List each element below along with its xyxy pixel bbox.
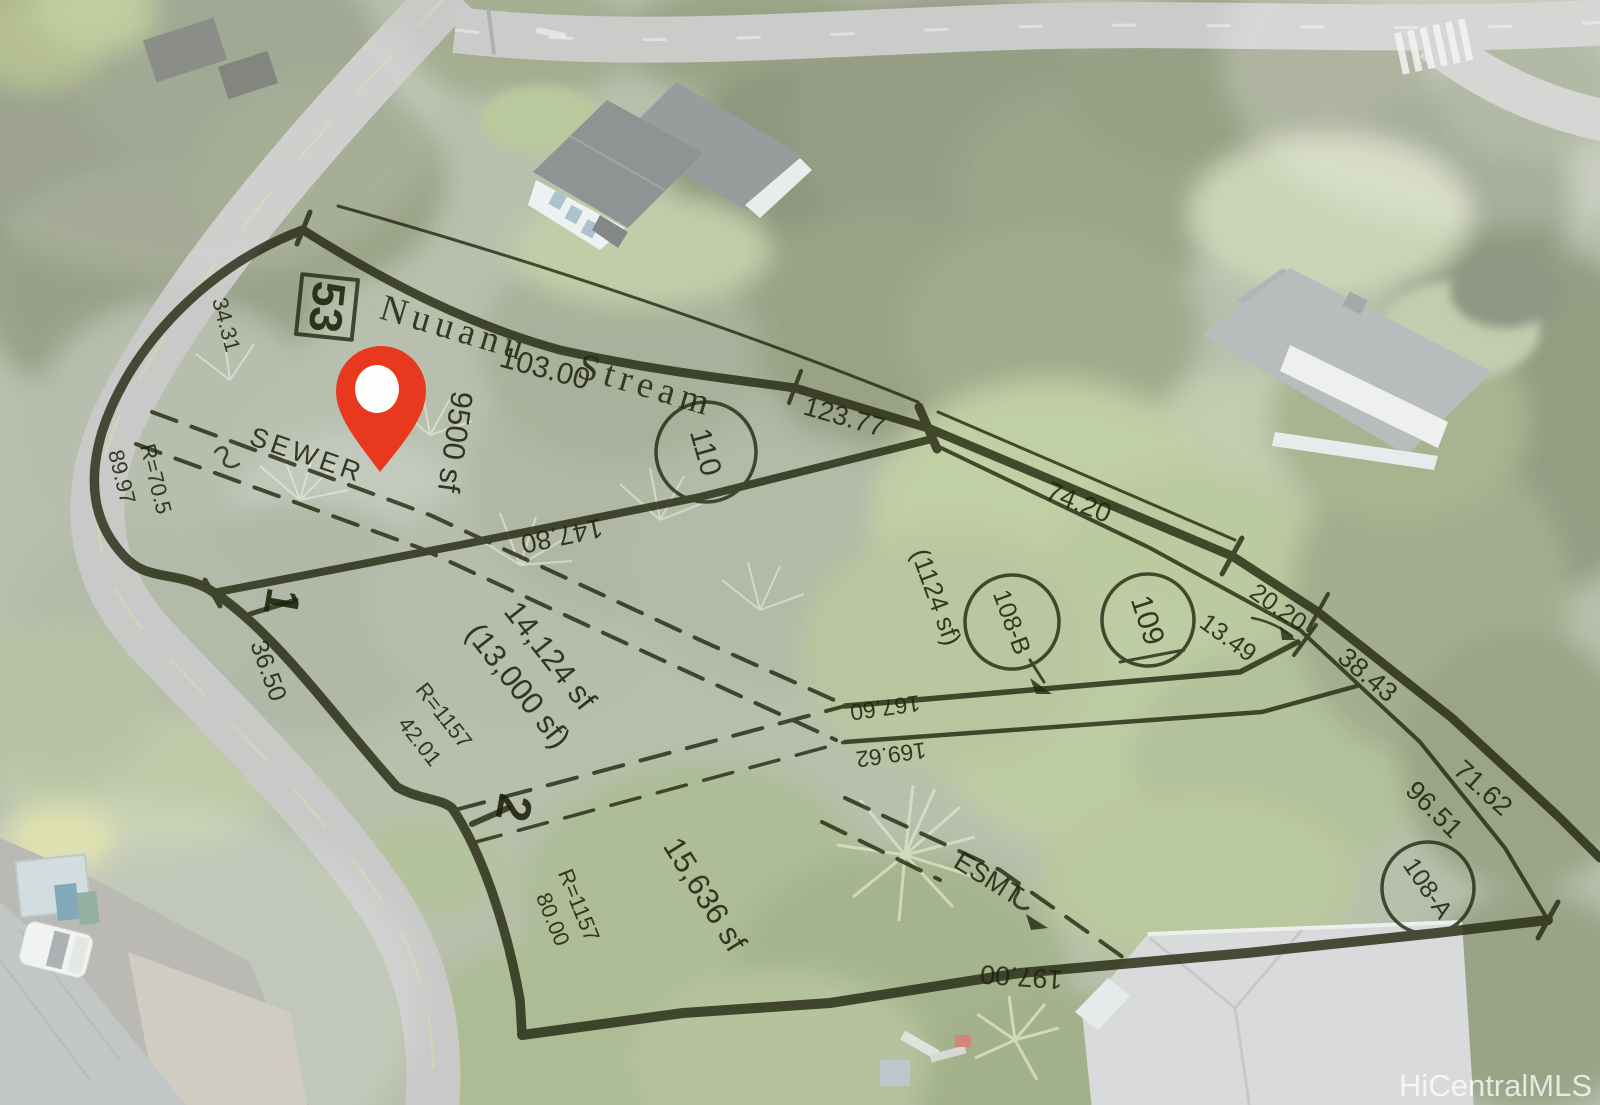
listing-photo-aerial-plat-map: Nuuanu Stream 103.00 123.77 74.20 20.20 … — [0, 0, 1600, 1105]
dim-label-197: 197.00 — [979, 959, 1063, 995]
lot53-number: 53 — [299, 279, 356, 335]
aerial-map-scene: Nuuanu Stream 103.00 123.77 74.20 20.20 … — [0, 0, 1600, 1105]
pin-inner-circle — [355, 365, 399, 413]
watermark-hicentralmls: HiCentralMLS — [1399, 1068, 1592, 1103]
